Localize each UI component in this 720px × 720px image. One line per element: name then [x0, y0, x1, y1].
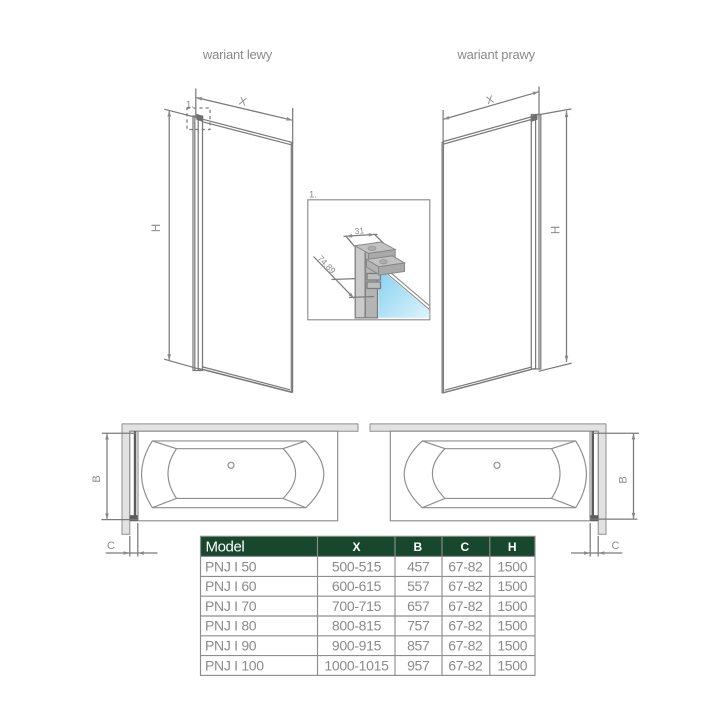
svg-text:B: B [91, 475, 103, 482]
svg-text:PNJ I 60: PNJ I 60 [205, 578, 257, 594]
svg-text:X: X [238, 95, 249, 109]
svg-text:1500: 1500 [497, 618, 527, 634]
svg-text:wariant lewy: wariant lewy [202, 47, 273, 62]
svg-text:957: 957 [407, 657, 430, 673]
svg-text:31: 31 [354, 225, 365, 236]
svg-text:wariant prawy: wariant prawy [456, 47, 535, 62]
svg-text:457: 457 [407, 558, 430, 574]
svg-text:1500: 1500 [497, 638, 527, 654]
svg-text:857: 857 [407, 638, 430, 654]
svg-text:X: X [485, 93, 496, 107]
svg-text:B: B [413, 540, 422, 554]
svg-text:PNJ I 50: PNJ I 50 [205, 558, 257, 574]
svg-text:PNJ I 80: PNJ I 80 [205, 618, 257, 634]
svg-text:C: C [107, 540, 115, 552]
svg-text:500-515: 500-515 [332, 558, 382, 574]
svg-text:1500: 1500 [497, 657, 527, 673]
svg-text:67-82: 67-82 [448, 618, 483, 634]
svg-text:H: H [508, 540, 517, 554]
svg-text:PNJ I 100: PNJ I 100 [205, 657, 264, 673]
svg-text:600-615: 600-615 [332, 578, 382, 594]
svg-text:1.: 1. [309, 190, 317, 201]
svg-text:H: H [151, 224, 163, 232]
svg-text:1000-1015: 1000-1015 [324, 657, 389, 673]
svg-text:67-82: 67-82 [448, 657, 483, 673]
svg-text:67-82: 67-82 [448, 558, 483, 574]
svg-text:PNJ I 70: PNJ I 70 [205, 598, 257, 614]
svg-text:757: 757 [407, 618, 430, 634]
svg-text:67-82: 67-82 [448, 598, 483, 614]
svg-text:B: B [618, 476, 630, 483]
svg-text:Model: Model [206, 539, 245, 556]
svg-text:PNJ I 90: PNJ I 90 [205, 638, 257, 654]
svg-text:800-815: 800-815 [332, 618, 382, 634]
svg-text:1.: 1. [186, 100, 194, 111]
svg-text:900-915: 900-915 [332, 638, 382, 654]
svg-text:1500: 1500 [497, 578, 527, 594]
svg-text:X: X [352, 540, 360, 554]
svg-text:67-82: 67-82 [448, 638, 483, 654]
svg-text:1500: 1500 [497, 558, 527, 574]
svg-text:1500: 1500 [497, 598, 527, 614]
svg-text:700-715: 700-715 [332, 598, 382, 614]
svg-text:H: H [551, 226, 563, 234]
svg-text:557: 557 [407, 578, 430, 594]
svg-text:657: 657 [407, 598, 430, 614]
svg-text:C: C [460, 540, 469, 554]
svg-text:C: C [612, 540, 620, 552]
svg-text:67-82: 67-82 [448, 578, 483, 594]
